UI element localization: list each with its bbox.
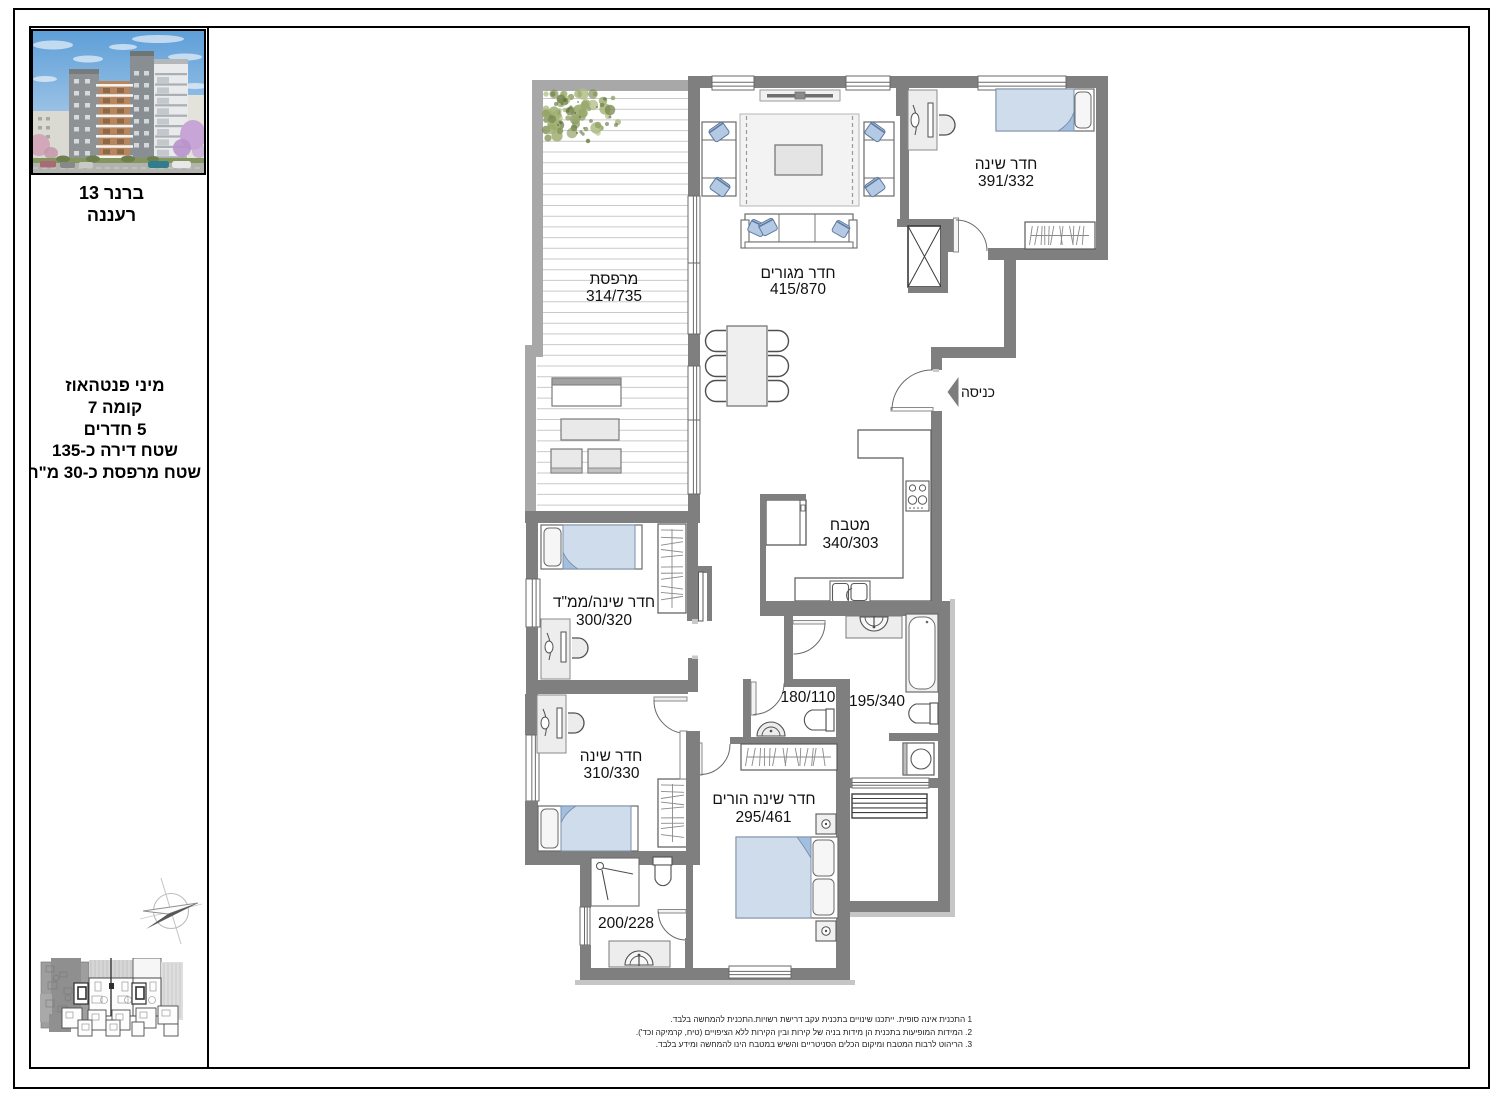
- svg-text:295/461: 295/461: [735, 809, 791, 826]
- svg-text:310/330: 310/330: [583, 765, 639, 782]
- svg-text:340/303: 340/303: [822, 535, 878, 552]
- svg-text:מטבח: מטבח: [830, 517, 870, 534]
- svg-text:חדר שינה הורים: חדר שינה הורים: [712, 791, 815, 808]
- svg-text:314/735: 314/735: [586, 288, 642, 305]
- svg-text:200/228: 200/228: [598, 915, 654, 932]
- svg-text:חדר שינה: חדר שינה: [580, 748, 643, 765]
- svg-text:כניסה: כניסה: [961, 384, 995, 400]
- svg-text:195/340: 195/340: [849, 693, 905, 710]
- svg-text:415/870: 415/870: [770, 281, 826, 298]
- svg-text:חדר שינה: חדר שינה: [975, 156, 1038, 173]
- svg-text:391/332: 391/332: [978, 173, 1034, 190]
- svg-text:300/320: 300/320: [576, 612, 632, 629]
- svg-text:חדר מגורים: חדר מגורים: [760, 265, 835, 282]
- svg-text:180/110: 180/110: [781, 689, 836, 706]
- svg-text:חדר שינה/ממ"ד: חדר שינה/ממ"ד: [553, 594, 655, 611]
- svg-text:מרפסת: מרפסת: [590, 271, 639, 288]
